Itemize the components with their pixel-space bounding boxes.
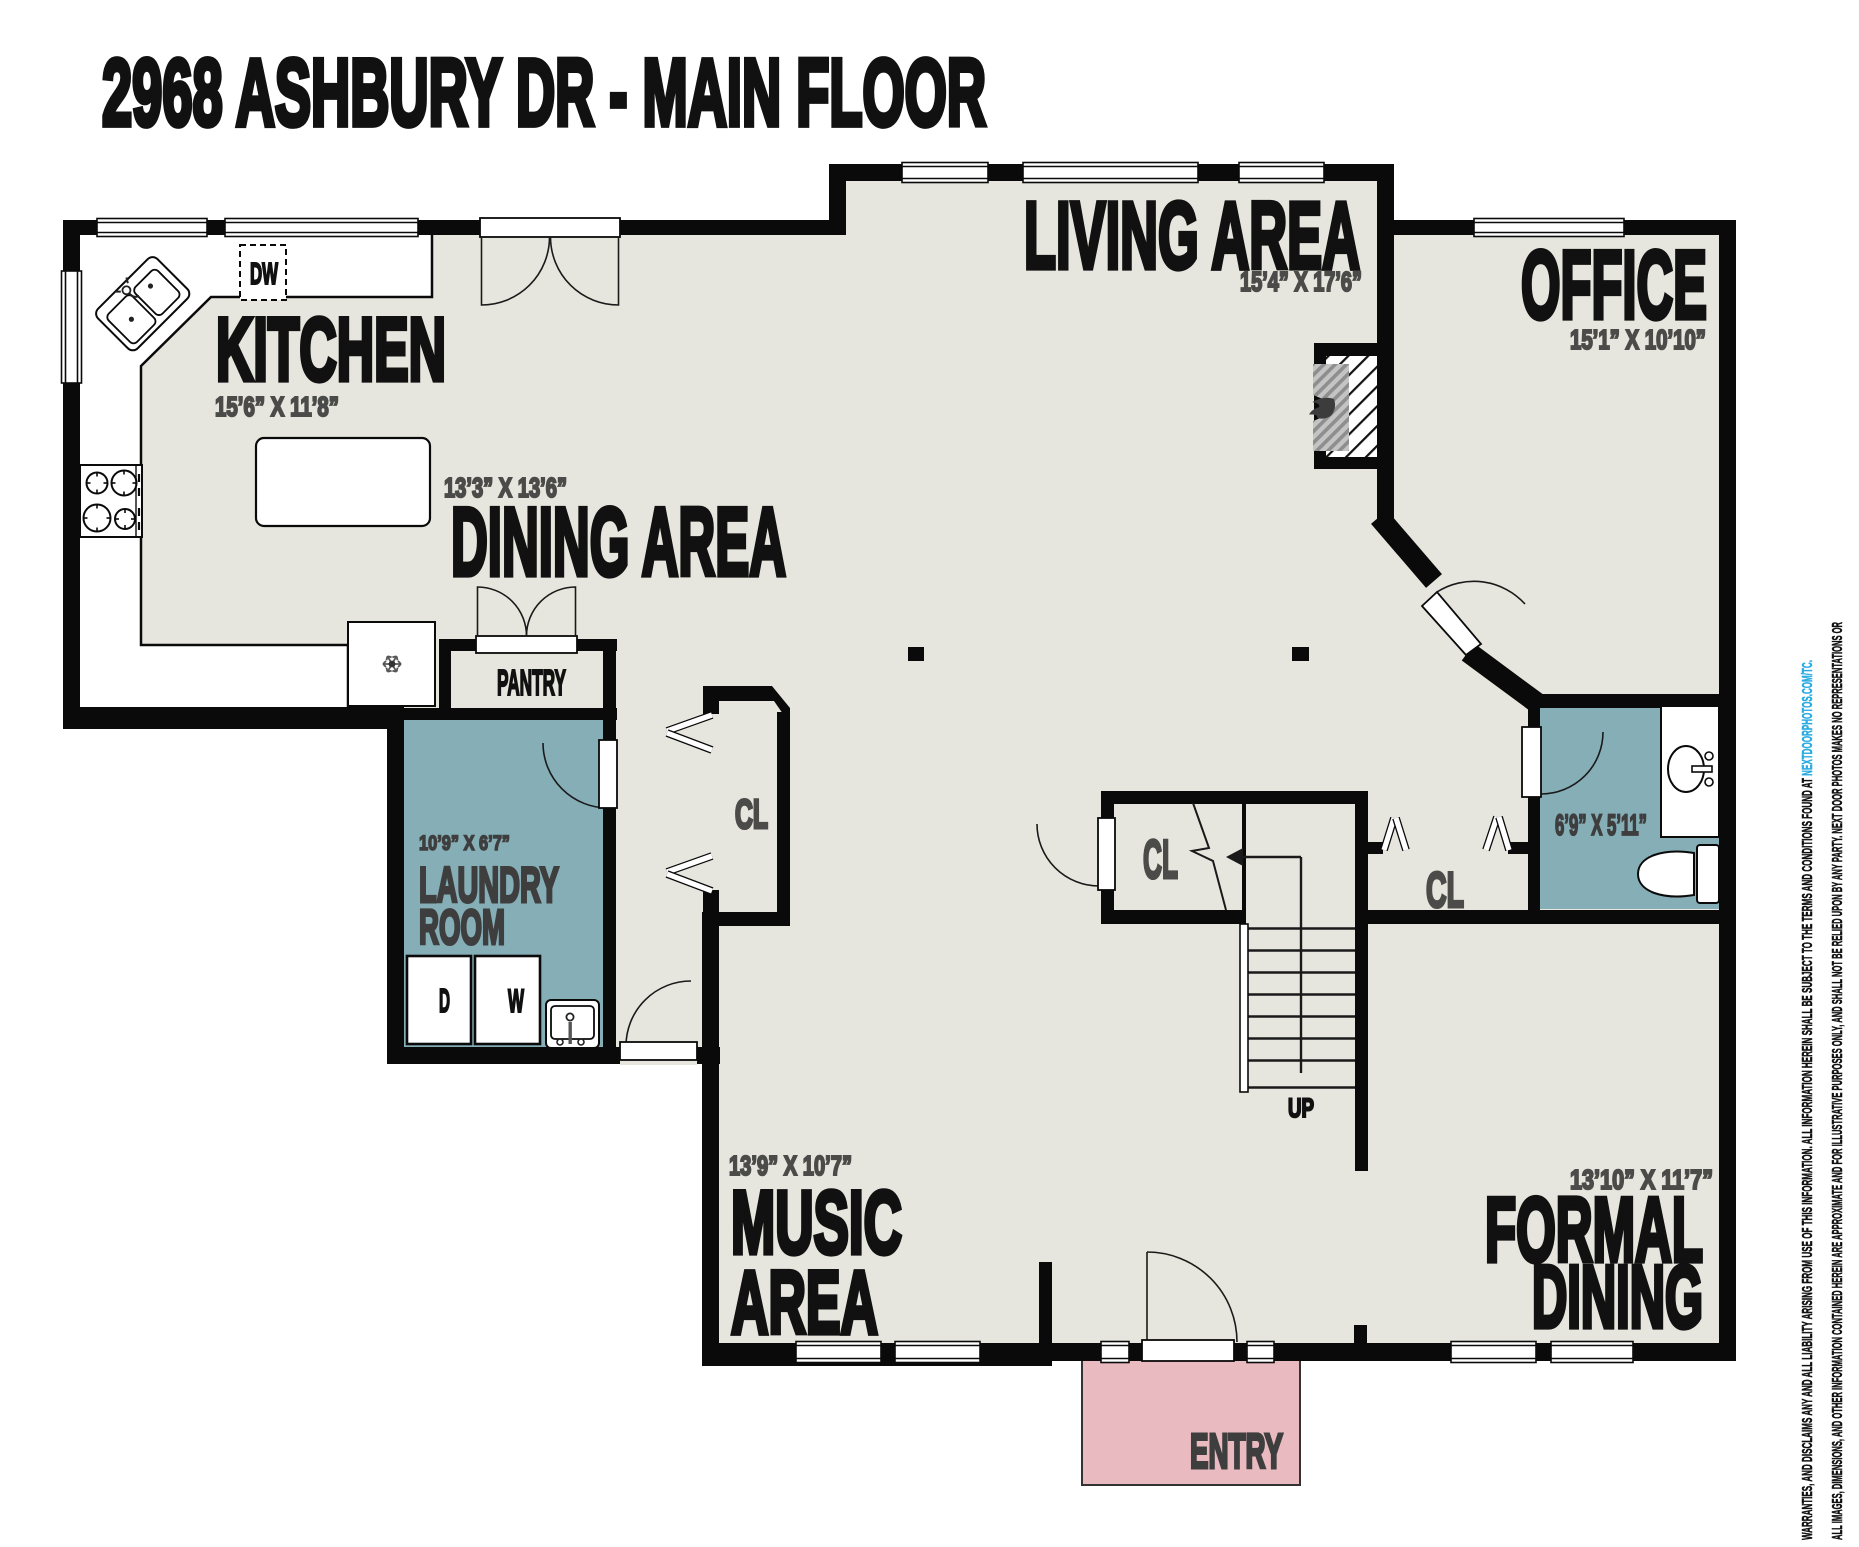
svg-text:ENTRY: ENTRY	[1190, 1425, 1283, 1479]
svg-text:CL: CL	[1426, 861, 1464, 918]
svg-text:10’9” X 6’7”: 10’9” X 6’7”	[419, 832, 510, 855]
svg-text:DINING: DINING	[1532, 1247, 1703, 1346]
svg-text:6’9” X 5’11”: 6’9” X 5’11”	[1555, 809, 1647, 842]
svg-text:ROOM: ROOM	[419, 901, 505, 955]
svg-text:KITCHEN: KITCHEN	[216, 299, 446, 399]
svg-text:W: W	[508, 983, 524, 1019]
svg-text:DW: DW	[250, 256, 278, 291]
svg-text:DINING AREA: DINING AREA	[451, 489, 786, 596]
svg-text:15’6” X 11’8”: 15’6” X 11’8”	[215, 391, 339, 422]
svg-text:CL: CL	[735, 791, 768, 837]
svg-text:UP: UP	[1288, 1093, 1314, 1123]
svg-text:D: D	[439, 983, 450, 1020]
svg-text:CL: CL	[1143, 829, 1178, 890]
svg-text:OFFICE: OFFICE	[1521, 232, 1707, 339]
svg-text:AREA: AREA	[731, 1252, 878, 1352]
svg-text:13’3” X 13’6”: 13’3” X 13’6”	[444, 472, 567, 503]
svg-text:15’4” X 17’6”: 15’4” X 17’6”	[1240, 266, 1362, 297]
svg-text:15’1” X 10’10”: 15’1” X 10’10”	[1570, 324, 1706, 355]
svg-text:PANTRY: PANTRY	[497, 662, 566, 703]
svg-text:2968 ASHBURY DR - MAIN FLOOR: 2968 ASHBURY DR - MAIN FLOOR	[102, 40, 986, 146]
svg-text:ALL IMAGES, DIMENSIONS, AND OT: ALL IMAGES, DIMENSIONS, AND OTHER INFORM…	[1830, 622, 1846, 1540]
svg-text:WARRANTIES, AND DISCLAIMS ANY: WARRANTIES, AND DISCLAIMS ANY AND ALL LI…	[1800, 660, 1816, 1540]
